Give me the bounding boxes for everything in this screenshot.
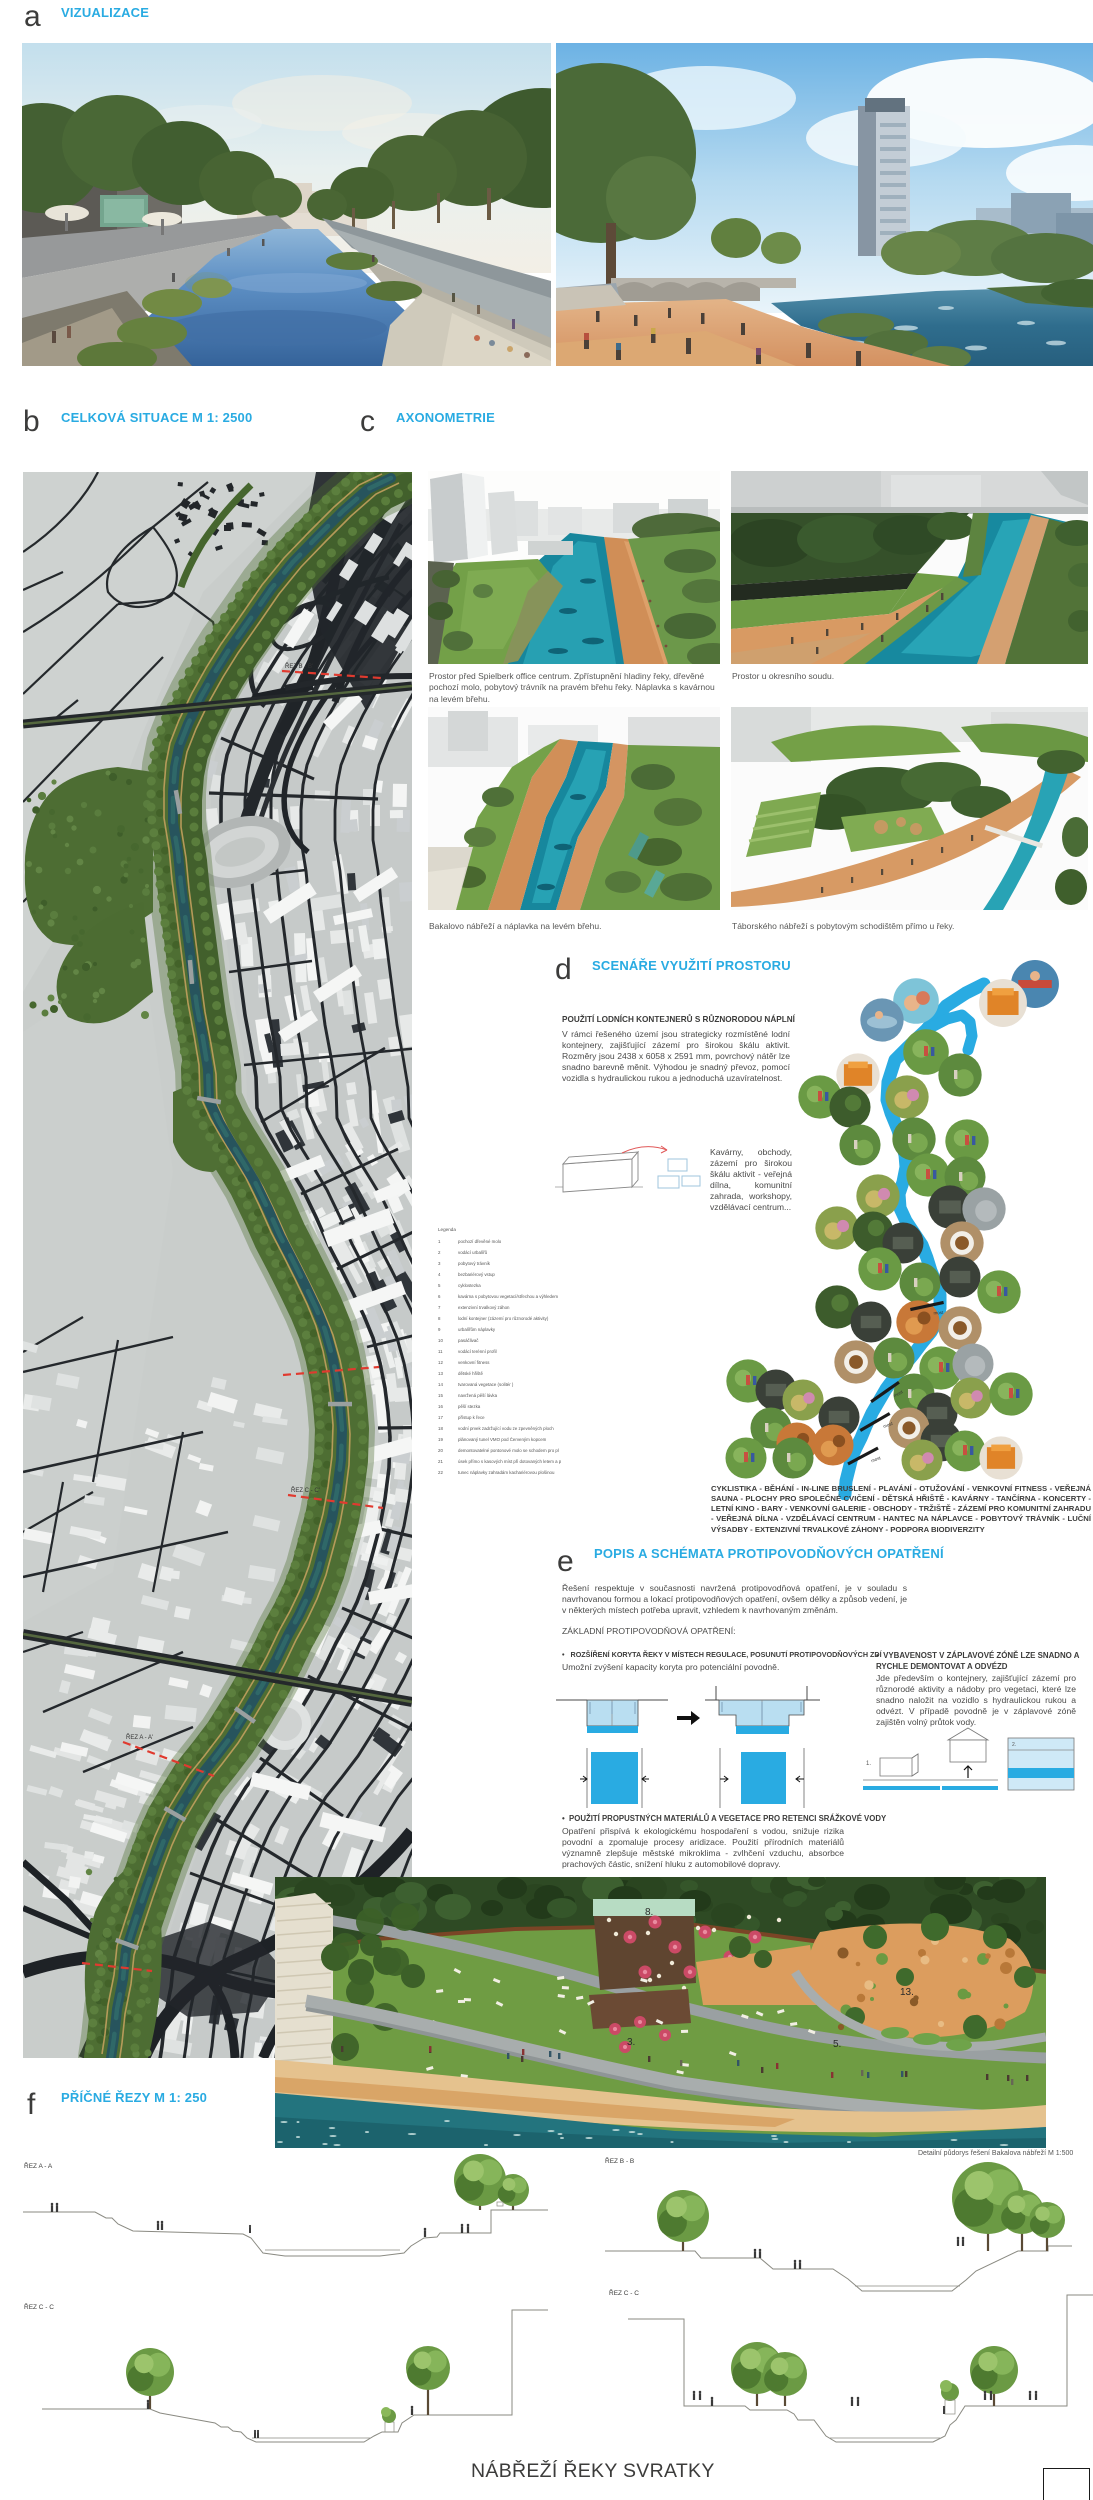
svg-text:21: 21 <box>438 1459 443 1464</box>
svg-text:vodní prvek zadržující vodu ze: vodní prvek zadržující vodu ze zpevněnýc… <box>458 1426 554 1431</box>
svg-text:9: 9 <box>438 1327 441 1332</box>
svg-text:12: 12 <box>438 1360 443 1365</box>
svg-text:most: most <box>870 1455 882 1463</box>
svg-text:3.: 3. <box>627 2037 635 2048</box>
svg-text:6: 6 <box>438 1294 441 1299</box>
svg-text:15: 15 <box>438 1393 443 1398</box>
svg-text:2: 2 <box>438 1250 441 1255</box>
svg-text:most: most <box>933 1310 944 1316</box>
svg-text:14: 14 <box>438 1382 443 1387</box>
svg-text:dětské hřiště: dětské hřiště <box>458 1371 483 1376</box>
svg-text:16: 16 <box>438 1404 443 1409</box>
svg-text:18: 18 <box>438 1426 443 1431</box>
svg-text:8: 8 <box>438 1316 441 1321</box>
svg-text:ŘEZ B - B': ŘEZ B - B' <box>285 662 313 670</box>
svg-text:1.: 1. <box>866 1761 871 1767</box>
svg-text:ŘEZ C - C': ŘEZ C - C' <box>291 1486 320 1494</box>
svg-text:13: 13 <box>438 1371 443 1376</box>
svg-text:3: 3 <box>438 1261 441 1266</box>
svg-text:4: 4 <box>438 1272 441 1277</box>
svg-text:pochozí dřevěné molo: pochozí dřevěné molo <box>458 1239 502 1244</box>
svg-text:extenzivní trvalkový záhon: extenzivní trvalkový záhon <box>458 1305 510 1310</box>
svg-text:Legenda: Legenda <box>438 1227 456 1232</box>
svg-text:11: 11 <box>438 1349 443 1354</box>
svg-text:20: 20 <box>438 1448 443 1453</box>
svg-text:1: 1 <box>438 1239 441 1244</box>
svg-text:tvarovaná vegetace (solitér ): tvarovaná vegetace (solitér ) <box>458 1382 514 1387</box>
svg-text:demontovatelné pontonové molo: demontovatelné pontonové molo se schodem… <box>458 1448 559 1453</box>
svg-text:urbalířům náplavky: urbalířům náplavky <box>458 1327 496 1332</box>
svg-text:10: 10 <box>438 1338 443 1343</box>
svg-text:vodácí terénní profil: vodácí terénní profil <box>458 1349 497 1354</box>
svg-text:22: 22 <box>438 1470 443 1475</box>
svg-text:13.: 13. <box>900 1987 914 1998</box>
svg-text:5: 5 <box>438 1283 441 1288</box>
svg-text:plánovaný tunel VMO pod Červe: plánovaný tunel VMO pod Červeným kopcem <box>458 1437 547 1442</box>
svg-text:8.: 8. <box>645 1907 653 1918</box>
svg-text:2.: 2. <box>1012 1742 1016 1748</box>
svg-text:ŘEZ A - A': ŘEZ A - A' <box>126 1733 153 1741</box>
svg-text:7: 7 <box>438 1305 441 1310</box>
svg-text:přístup k řece: přístup k řece <box>458 1415 485 1420</box>
svg-text:17: 17 <box>438 1415 443 1420</box>
svg-text:cyklostezka: cyklostezka <box>458 1283 481 1288</box>
svg-text:5.: 5. <box>833 2039 841 2050</box>
svg-text:úsek přímo s kasových míst při: úsek přímo s kasových míst při dotovanýc… <box>458 1459 562 1464</box>
svg-text:pěší stezka: pěší stezka <box>458 1404 481 1409</box>
svg-text:tunec náplavky zahradám kachar: tunec náplavky zahradám kachariérovou pl… <box>458 1470 555 1475</box>
svg-text:pobytový trávník: pobytový trávník <box>458 1261 491 1266</box>
svg-text:navržená pěší lávka: navržená pěší lávka <box>458 1393 498 1398</box>
svg-text:lodní kontejner (zázemí pro r: lodní kontejner (zázemí pro různorodé ak… <box>458 1316 549 1321</box>
svg-text:kavárna s pobytovou vegetací/s: kavárna s pobytovou vegetací/střechou a … <box>458 1294 558 1299</box>
svg-text:19: 19 <box>438 1437 443 1442</box>
svg-text:vodácí urbalířů: vodácí urbalířů <box>458 1250 488 1255</box>
svg-text:venkovní fitness: venkovní fitness <box>458 1360 490 1365</box>
svg-text:pasáčlivač: pasáčlivač <box>458 1338 479 1343</box>
svg-text:bezbariérový vstup: bezbariérový vstup <box>458 1272 495 1277</box>
